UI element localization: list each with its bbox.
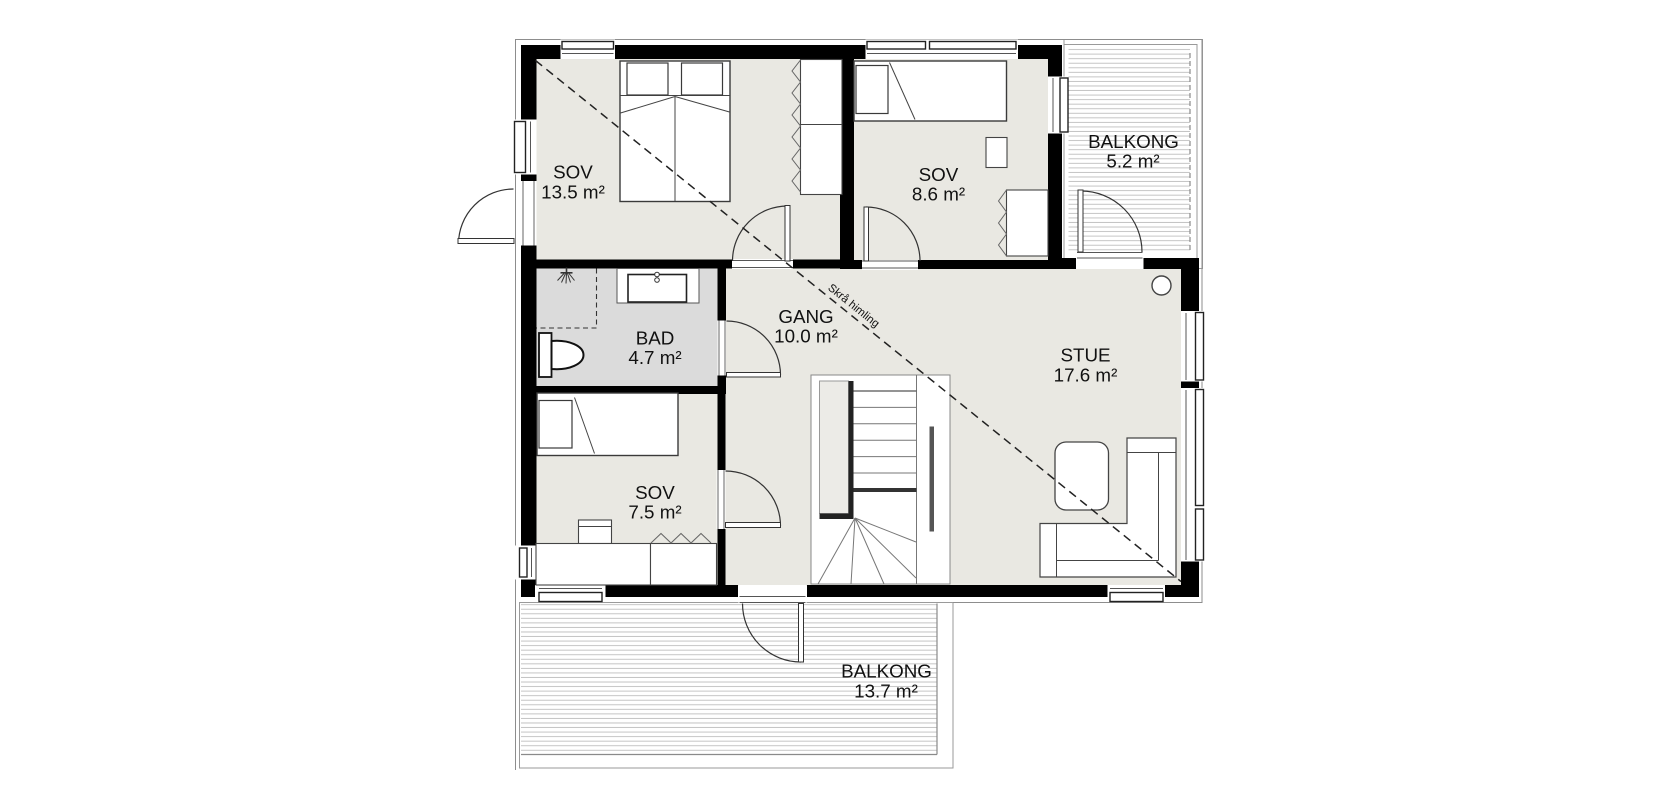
svg-text:10.0 m²: 10.0 m² — [774, 326, 838, 347]
svg-text:13.7 m²: 13.7 m² — [854, 681, 918, 702]
svg-text:BALKONG: BALKONG — [841, 661, 932, 682]
svg-text:SOV: SOV — [919, 164, 959, 185]
svg-text:SOV: SOV — [553, 162, 593, 183]
svg-text:4.7 m²: 4.7 m² — [628, 347, 681, 368]
svg-text:8.6 m²: 8.6 m² — [912, 184, 965, 205]
svg-text:17.6 m²: 17.6 m² — [1054, 365, 1118, 386]
svg-text:5.2 m²: 5.2 m² — [1106, 151, 1159, 172]
svg-text:7.5 m²: 7.5 m² — [628, 502, 681, 523]
svg-text:SOV: SOV — [635, 482, 675, 503]
svg-text:13.5 m²: 13.5 m² — [541, 182, 605, 203]
svg-text:STUE: STUE — [1060, 345, 1110, 366]
svg-text:BALKONG: BALKONG — [1088, 131, 1179, 152]
svg-text:GANG: GANG — [778, 306, 833, 327]
svg-text:BAD: BAD — [636, 328, 675, 349]
